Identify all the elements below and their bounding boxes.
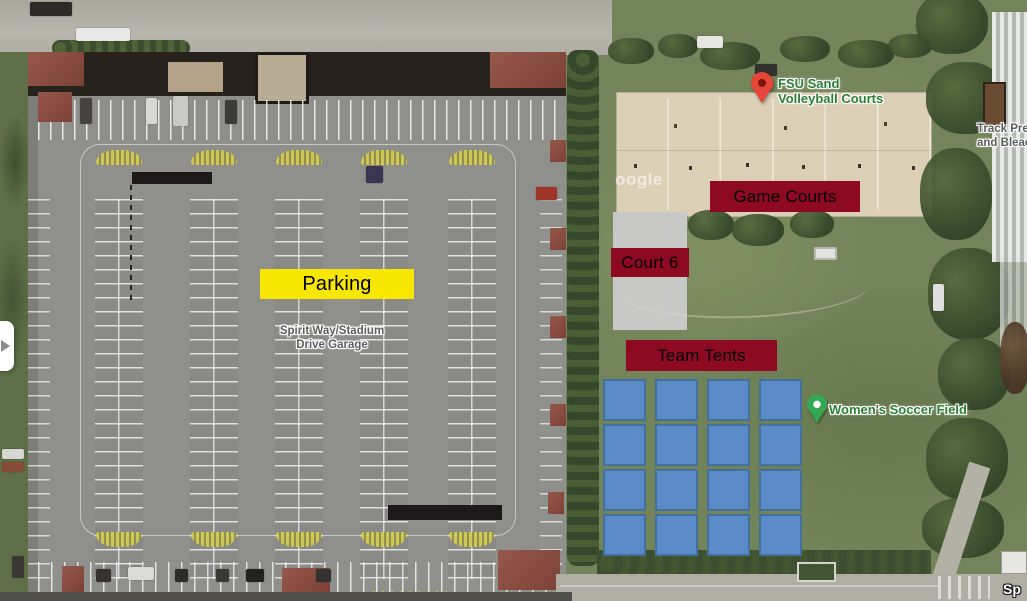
parking-stall-column	[95, 199, 143, 579]
street-name-label: Sp	[1003, 581, 1021, 597]
track-label-line1: Track Pres	[977, 123, 1027, 137]
tree-cluster	[790, 210, 834, 238]
tent-square	[759, 424, 802, 466]
expansion-joint	[130, 185, 132, 303]
pin-inner-dot	[813, 401, 820, 408]
brick-block	[550, 404, 566, 426]
parking-stall-column	[540, 199, 562, 579]
brick-block	[62, 566, 84, 592]
tent-square	[707, 379, 750, 421]
team-tents-label-box: Team Tents	[626, 340, 777, 371]
parking-label-box: Parking	[260, 269, 414, 299]
side-panel-toggle[interactable]	[0, 321, 14, 371]
brick-block	[550, 140, 566, 162]
game-courts-label-box: Game Courts	[710, 181, 860, 212]
tent-square	[707, 424, 750, 466]
parked-car	[96, 569, 111, 582]
fsu-label-line1: FSU Sand	[778, 76, 883, 91]
google-watermark: oogle	[615, 170, 663, 190]
parked-car	[366, 166, 383, 183]
court-6-label: Court 6	[621, 253, 678, 273]
fsu-label-line2: Volleyball Courts	[778, 91, 883, 106]
brown-tree	[1000, 322, 1027, 394]
parked-car	[146, 98, 157, 124]
red-map-pin-icon	[751, 72, 773, 103]
garage-label-line1: Spirit Way/Stadium	[272, 325, 392, 339]
garage-label-line2: Drive Garage	[272, 339, 392, 353]
tree-cluster	[920, 148, 992, 240]
road-center-line	[560, 585, 940, 587]
parking-stall-column	[28, 199, 50, 579]
garage-brick-corner	[490, 52, 566, 88]
yellow-hatch-marking	[191, 150, 237, 165]
parked-car	[2, 462, 24, 472]
tent-square	[603, 379, 646, 421]
parked-car	[80, 98, 92, 124]
parked-car	[128, 567, 154, 580]
team-tents-grid	[603, 379, 802, 556]
parked-van	[697, 36, 723, 48]
brick-block	[38, 92, 72, 122]
parked-car	[225, 100, 237, 124]
parked-car	[12, 556, 24, 578]
tree-cluster	[916, 0, 988, 54]
canopy-structure	[388, 505, 502, 520]
parked-car	[173, 96, 188, 126]
net-posts	[634, 164, 637, 168]
tent-square	[603, 469, 646, 511]
yellow-hatch-marking	[361, 150, 407, 165]
brick-block	[548, 492, 564, 514]
parking-stall-column	[275, 199, 323, 579]
parked-car	[316, 569, 331, 582]
parked-car	[175, 569, 188, 582]
garage-map-label: Spirit Way/Stadium Drive Garage	[272, 325, 392, 352]
team-tents-label: Team Tents	[657, 346, 746, 366]
tent-square	[603, 514, 646, 556]
yellow-hatch-marking	[96, 150, 142, 165]
brick-block	[498, 550, 560, 590]
parking-stall-column	[448, 199, 496, 579]
parking-stall-column	[360, 199, 408, 579]
parked-truck	[30, 2, 72, 16]
court-6-label-box: Court 6	[611, 248, 689, 277]
garage-brick-corner	[28, 52, 84, 86]
garage-roof-patch	[168, 62, 223, 92]
tent-square	[655, 424, 698, 466]
garage-stall-row-top	[38, 100, 558, 140]
white-structure	[1001, 551, 1027, 574]
chevron-right-icon	[1, 340, 10, 352]
canopy-structure	[132, 172, 212, 184]
parked-car	[2, 449, 24, 459]
track-map-label: Track Pres and Bleac	[977, 123, 1027, 150]
tent-square	[655, 379, 698, 421]
tent-square	[707, 469, 750, 511]
press-box	[983, 82, 1006, 126]
fsu-sand-volleyball-poi[interactable]	[751, 72, 773, 103]
brick-block	[550, 228, 566, 250]
track-label-line2: and Bleac	[977, 137, 1027, 151]
yellow-hatch-marking	[276, 150, 322, 165]
parking-stall-column	[190, 199, 238, 579]
tent-square	[759, 514, 802, 556]
fsu-sand-volleyball-label[interactable]: FSU Sand Volleyball Courts	[778, 76, 883, 106]
game-courts-label: Game Courts	[733, 187, 836, 207]
tent-square	[759, 379, 802, 421]
womens-soccer-field-poi[interactable]	[806, 393, 828, 424]
event-map[interactable]: oogle Parking Game Courts Court 6 Team T…	[0, 0, 1027, 601]
parked-car	[216, 569, 229, 582]
tent-square	[759, 469, 802, 511]
crosswalk-marking	[938, 576, 990, 599]
tree-cluster	[780, 36, 830, 62]
tree-cluster	[688, 210, 734, 240]
parking-garage	[28, 52, 566, 592]
road-shadow	[0, 592, 572, 601]
parked-van	[933, 284, 944, 311]
tent-square	[603, 424, 646, 466]
green-map-pin-icon	[807, 394, 827, 423]
parked-car	[536, 187, 557, 200]
parked-bus	[76, 28, 130, 41]
soccer-goal	[797, 562, 836, 582]
brick-block	[550, 316, 566, 338]
tree-hedge-line	[567, 50, 599, 566]
tent-square	[655, 469, 698, 511]
tree-cluster	[658, 34, 698, 58]
tree-cluster	[732, 214, 784, 246]
tent-square	[707, 514, 750, 556]
parked-car	[246, 569, 264, 582]
tree-cluster	[608, 38, 654, 64]
garage-stair-tower	[258, 55, 306, 101]
tent-square	[655, 514, 698, 556]
pin-inner-dot	[758, 79, 766, 87]
car-on-grass	[814, 247, 837, 260]
womens-soccer-field-label[interactable]: Women's Soccer Field	[829, 402, 967, 417]
tree-cluster	[838, 40, 894, 68]
yellow-hatch-marking	[449, 150, 495, 165]
parking-label: Parking	[302, 273, 371, 296]
